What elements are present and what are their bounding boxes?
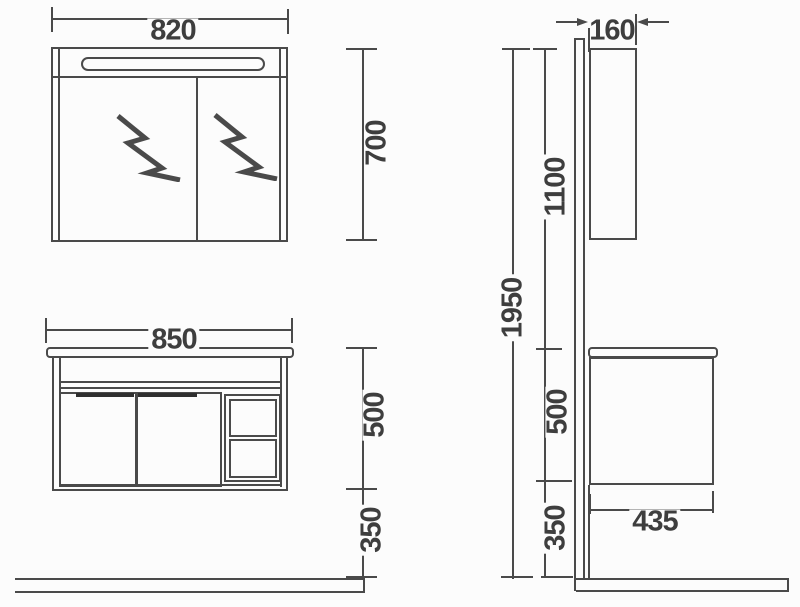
technical-drawing-canvas: 820 700 850 500 [0, 0, 800, 607]
drawer-bottom [229, 439, 277, 478]
mirror-cabinet-side-profile [589, 48, 637, 240]
dim-820-tick-left [51, 7, 53, 32]
dim-1100-label: 1100 [543, 155, 568, 220]
dim-160-stub-right [648, 21, 669, 23]
wall-line-outer [574, 38, 576, 591]
dim-350-side-label: 350 [543, 502, 568, 553]
vanity-outer-left [52, 357, 54, 491]
dim-1100-tick-bottom [536, 348, 562, 350]
dim-160-arrow-right-icon [577, 18, 588, 26]
mirror-door-divider [196, 78, 198, 240]
dim-500-tick-top [346, 347, 377, 349]
dim-500-side-label: 500 [545, 386, 570, 437]
dim-160-arrow-left-icon [637, 18, 648, 26]
dim-820-label: 820 [147, 18, 198, 43]
dim-1100-tick-top [533, 48, 557, 50]
drawer-top [229, 399, 277, 437]
door-handle-middle [138, 393, 197, 397]
light-bar [81, 57, 265, 71]
wall-top-cap [574, 38, 585, 40]
dim-700-tick-top [346, 48, 377, 50]
vanity-apron-line-1 [60, 381, 281, 383]
dim-160-label: 160 [589, 19, 634, 42]
mirror-lightning-icon [116, 114, 182, 182]
dim-500-label: 500 [362, 389, 387, 440]
floor-slab-front [15, 578, 365, 593]
vanity-bottom-outer [52, 489, 288, 491]
dim-500-side-tick-bottom [536, 480, 572, 482]
vanity-door-middle [136, 392, 222, 487]
dim-435-tick-right [712, 491, 714, 513]
vanity-outer-right [286, 357, 288, 491]
door-handle-left [76, 393, 134, 397]
dim-350-label: 350 [359, 504, 384, 555]
floor-slab-side [576, 578, 789, 592]
dim-1950-tick-bottom [501, 576, 533, 578]
dim-850-tick-left [45, 318, 47, 343]
dim-700-label: 700 [364, 117, 389, 168]
mirror-lightning-icon [213, 113, 279, 181]
dim-820-tick-right [287, 9, 289, 34]
dim-850-label: 850 [148, 327, 199, 352]
light-strip-separator [53, 76, 287, 78]
vanity-body-side [589, 357, 714, 485]
vanity-door-left [59, 392, 137, 487]
dim-350-side-tick-bottom [541, 576, 573, 578]
dim-435-tick-left [589, 494, 591, 514]
vanity-apron-line-2 [60, 387, 281, 389]
dim-1950-tick-top [502, 48, 530, 50]
dim-1950-label: 1950 [500, 275, 525, 342]
dim-160-stub-left [556, 21, 577, 23]
dim-850-tick-right [291, 318, 293, 343]
dim-700-tick-bottom [346, 239, 377, 241]
wall-line-inner [583, 38, 585, 578]
dim-435-label: 435 [629, 509, 680, 534]
